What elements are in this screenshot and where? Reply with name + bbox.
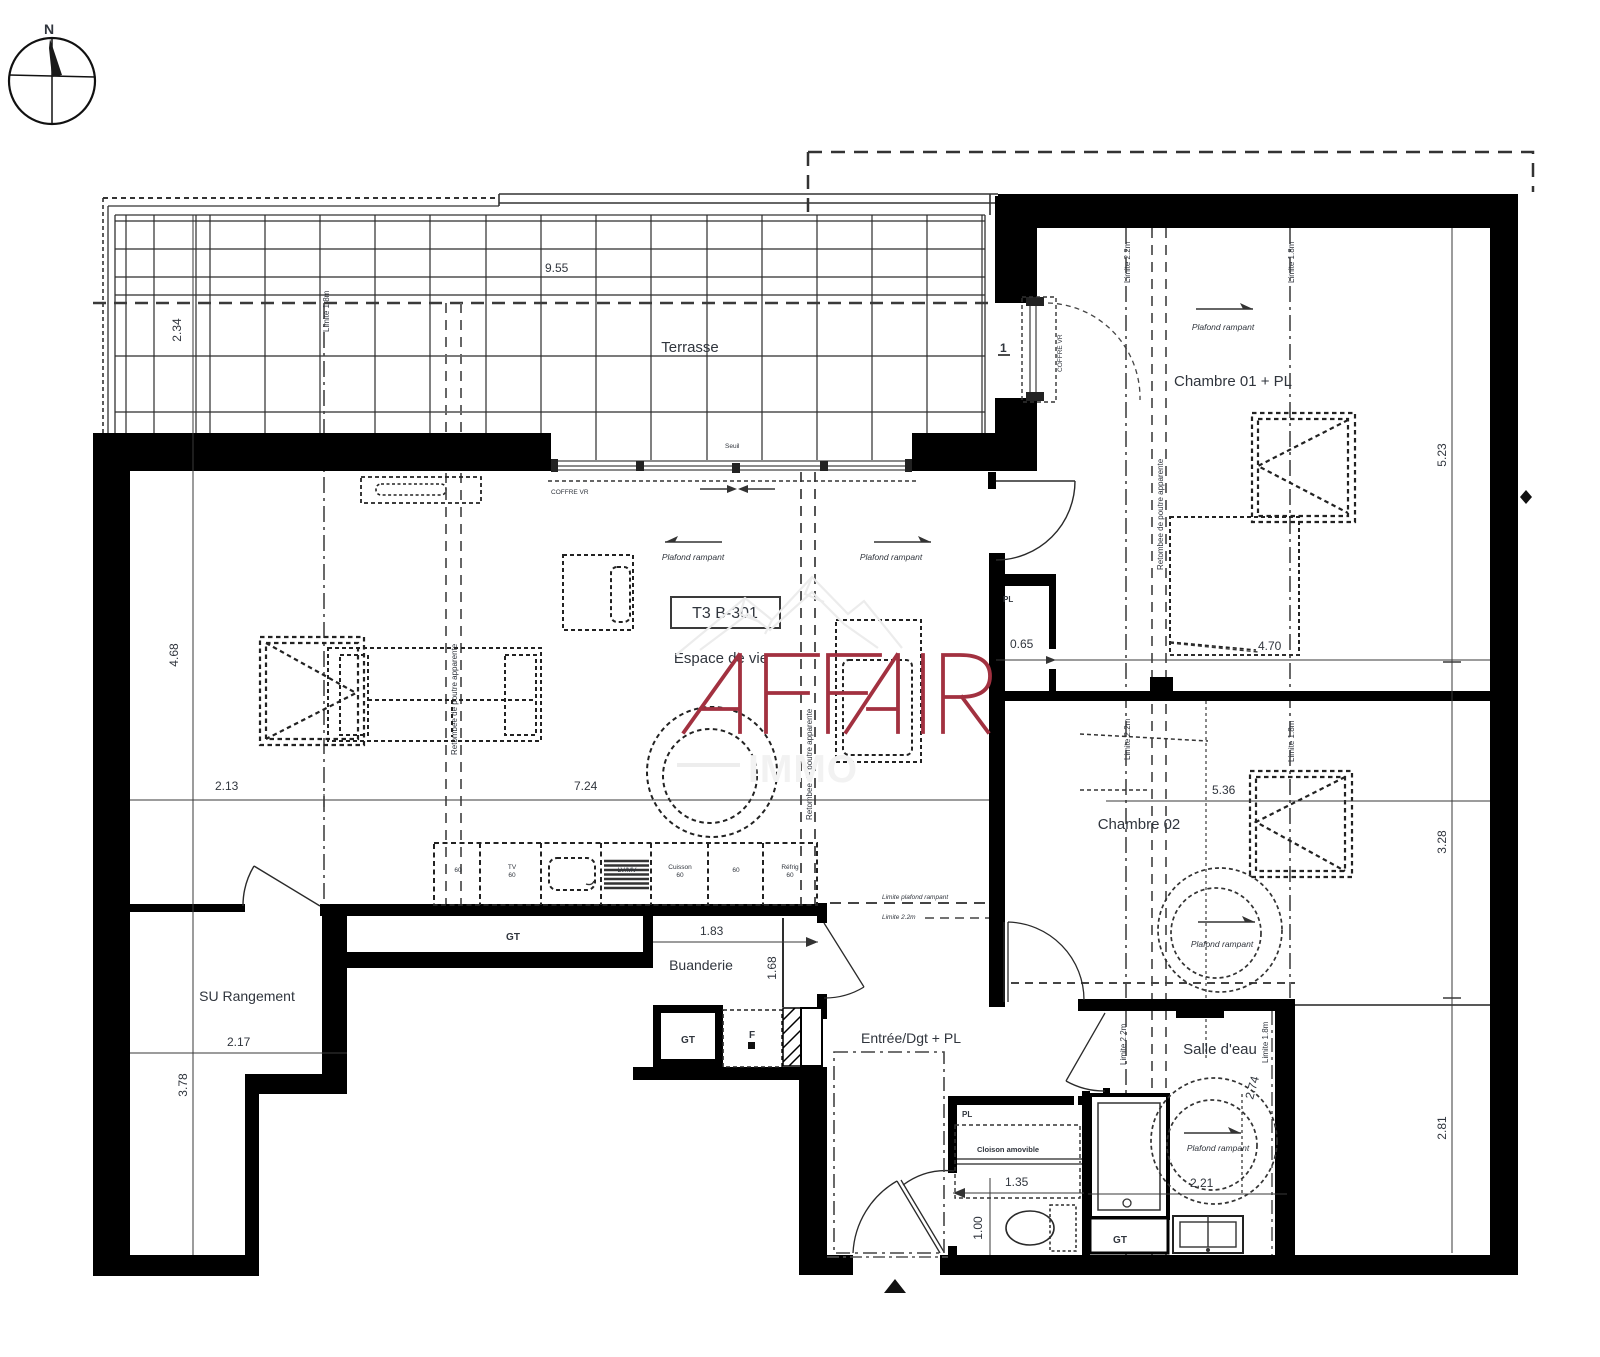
svg-text:Limite plafond rampant: Limite plafond rampant [882,894,949,901]
svg-text:60: 60 [454,867,462,874]
svg-text:TV: TV [508,864,517,871]
svg-text:PL: PL [962,1110,972,1119]
svg-text:Limite 1.8m: Limite 1.8m [1287,241,1296,283]
svg-text:Plafond rampant: Plafond rampant [1187,1143,1250,1153]
svg-text:Entrée/Dgt + PL: Entrée/Dgt + PL [861,1030,961,1046]
svg-text:60: 60 [508,872,516,879]
svg-text:7.24: 7.24 [574,779,598,793]
svg-text:Cloison amovible: Cloison amovible [977,1145,1039,1154]
svg-text:GT: GT [1113,1235,1127,1246]
svg-text:60: 60 [676,872,684,879]
svg-text:COFFRE VR: COFFRE VR [551,489,589,496]
svg-text:PL: PL [1003,595,1013,604]
svg-text:4.70: 4.70 [1258,639,1282,653]
svg-text:1.68: 1.68 [765,956,779,980]
svg-text:Espace de vie: Espace de vie [674,650,768,667]
svg-text:Plafond rampant: Plafond rampant [860,552,923,562]
svg-text:Chambre 02: Chambre 02 [1098,816,1181,833]
svg-text:Retombee de poutre apparente: Retombee de poutre apparente [1156,458,1165,570]
svg-text:Seuil: Seuil [725,443,740,450]
svg-text:3.78: 3.78 [176,1073,190,1097]
svg-text:9.55: 9.55 [545,261,569,275]
svg-text:Limite 1.8m: Limite 1.8m [1261,1021,1270,1063]
svg-text:Plafond rampant: Plafond rampant [1192,322,1255,332]
svg-text:Limite 1.8m: Limite 1.8m [1287,720,1296,762]
svg-text:IMMO: IMMO [748,748,858,791]
svg-text:1: 1 [1000,341,1007,355]
svg-text:60: 60 [732,867,740,874]
svg-text:Plafond rampant: Plafond rampant [1191,939,1254,949]
svg-text:5.23: 5.23 [1435,443,1449,467]
svg-text:Limite 2.2m: Limite 2.2m [1119,1023,1128,1065]
svg-text:2.17: 2.17 [227,1035,251,1049]
svg-text:1.00: 1.00 [971,1216,985,1240]
svg-text:COFFRE VR: COFFRE VR [1057,334,1064,372]
svg-text:Chambre 01 + PL: Chambre 01 + PL [1174,373,1292,390]
svg-text:LV/MV: LV/MV [617,867,637,874]
svg-text:2.13: 2.13 [215,779,239,793]
svg-text:2.21: 2.21 [1190,1176,1214,1190]
svg-text:Salle d'eau: Salle d'eau [1183,1041,1257,1058]
svg-text:2.81: 2.81 [1435,1116,1449,1140]
svg-text:Cuisson: Cuisson [668,864,692,871]
svg-text:0.65: 0.65 [1010,637,1034,651]
svg-text:60: 60 [786,872,794,879]
svg-text:3.28: 3.28 [1435,830,1449,854]
svg-text:Limite 2.2m: Limite 2.2m [1123,718,1132,760]
svg-text:F: F [749,1030,755,1041]
svg-text:4.68: 4.68 [167,643,181,667]
svg-text:1.35: 1.35 [1005,1175,1029,1189]
svg-text:1.83: 1.83 [700,924,724,938]
svg-text:Buanderie: Buanderie [669,957,733,973]
svg-text:SU Rangement: SU Rangement [199,988,295,1004]
svg-text:Réfrig: Réfrig [781,864,799,871]
svg-text:N: N [44,21,54,37]
svg-text:Terrasse: Terrasse [661,339,719,356]
svg-text:Limite 2.2m: Limite 2.2m [882,914,916,921]
svg-text:GT: GT [681,1035,695,1046]
svg-text:GT: GT [506,932,520,943]
svg-text:5.36: 5.36 [1212,783,1236,797]
svg-text:Limite 2.2m: Limite 2.2m [1123,241,1132,283]
svg-text:Limite 1.8m: Limite 1.8m [322,290,331,332]
svg-text:Plafond rampant: Plafond rampant [662,552,725,562]
svg-text:2.34: 2.34 [170,318,184,342]
